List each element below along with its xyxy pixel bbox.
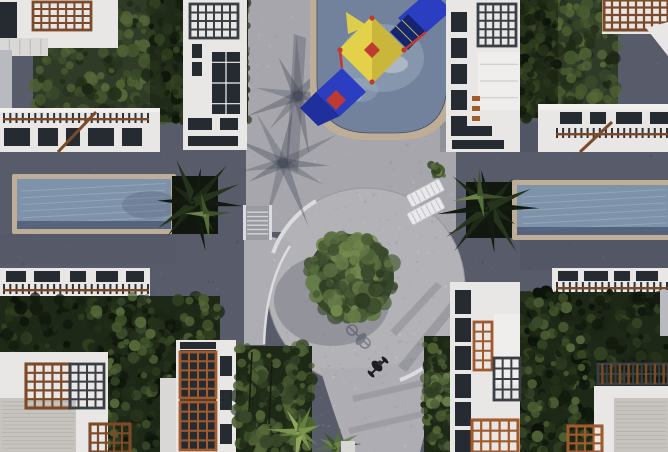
planter-pot <box>341 441 355 452</box>
quadrant-bottom-right <box>420 268 668 452</box>
tower-bl-top-slot <box>180 342 216 349</box>
wall-tl <box>0 50 12 114</box>
quadrant-top-left <box>0 0 252 152</box>
post-2 <box>401 47 406 52</box>
building-tr-windows <box>451 12 467 136</box>
facade-br-windows <box>558 271 658 281</box>
tower-bl-windows <box>220 356 232 444</box>
building-shadow-left <box>0 234 176 264</box>
tower-br-terrace <box>494 314 520 384</box>
palm-shadow-on-pool <box>122 191 178 219</box>
right-pool-edge-shadow <box>517 227 668 235</box>
aerial-render: Aerial top-down 3D render of a residenti… <box>0 0 668 452</box>
wall-br <box>660 290 668 336</box>
post-1 <box>369 15 374 20</box>
left-pool-edge-shadow <box>17 221 171 229</box>
wing-bl <box>160 378 176 452</box>
building-tr-orange-marks <box>472 96 480 121</box>
stairs-tread <box>244 206 271 240</box>
rider-head <box>378 361 383 366</box>
post-4 <box>337 47 342 52</box>
post-3 <box>369 79 374 84</box>
pergola-tl-tower <box>190 4 238 38</box>
window-tl-corner <box>0 2 17 40</box>
